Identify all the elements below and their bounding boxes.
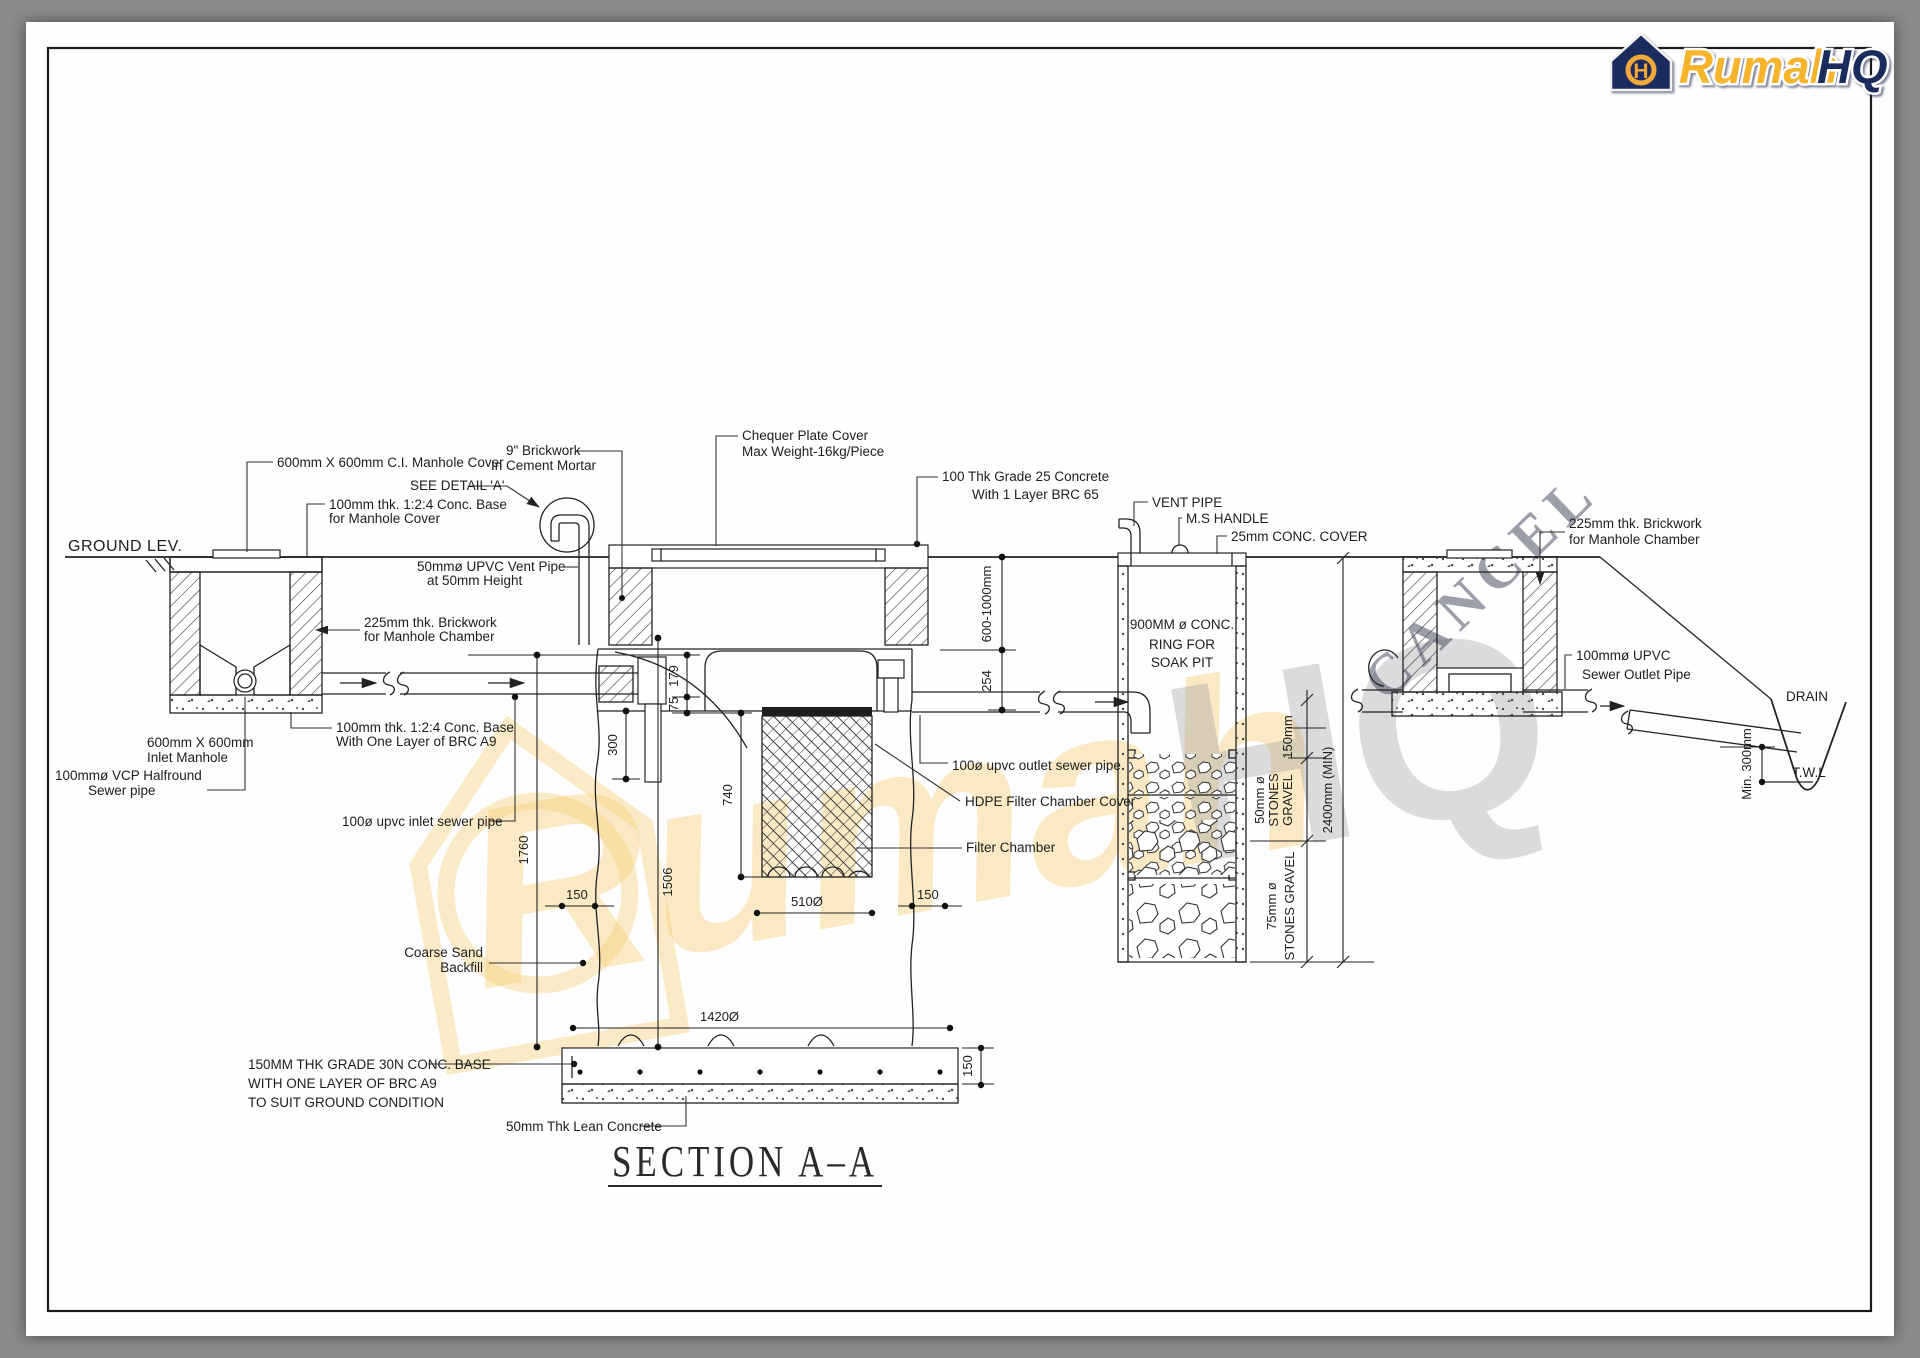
- svg-text:50mmø UPVC Vent Pipe: 50mmø UPVC Vent Pipe: [417, 559, 566, 574]
- dim-gravel75-line2: STONES GRAVEL: [1282, 852, 1297, 961]
- dim-510: 510Ø: [791, 894, 823, 909]
- section-title-text: SECTION A–A: [612, 1137, 878, 1186]
- svg-text:600mm X 600mm: 600mm X 600mm: [147, 735, 254, 750]
- section-title: SECTION A–A: [608, 1137, 882, 1186]
- drawing-sheet-stage: Rumah HQ CANCEL GROUND LEV.: [0, 0, 1920, 1358]
- dim-254: 254: [979, 670, 994, 692]
- svg-text:VENT PIPE: VENT PIPE: [1152, 495, 1222, 510]
- svg-text:Max Weight-16kg/Piece: Max Weight-16kg/Piece: [742, 444, 884, 459]
- svg-text:at 50mm Height: at 50mm Height: [427, 573, 523, 588]
- label-drain: DRAIN: [1786, 689, 1828, 704]
- svg-text:100mm thk. 1:2:4 Conc. Base: 100mm thk. 1:2:4 Conc. Base: [336, 720, 514, 735]
- svg-text:900MM ø CONC.: 900MM ø CONC.: [1130, 617, 1234, 632]
- svg-text:225mm thk. Brickwork: 225mm thk. Brickwork: [364, 615, 497, 630]
- svg-text:Sewer Outlet Pipe: Sewer Outlet Pipe: [1582, 667, 1691, 682]
- svg-text:With 1 Layer BRC 65: With 1 Layer BRC 65: [972, 487, 1099, 502]
- svg-text:SOAK PIT: SOAK PIT: [1151, 655, 1213, 670]
- dim-740: 740: [720, 784, 735, 806]
- svg-text:225mm thk. Brickwork: 225mm thk. Brickwork: [1569, 516, 1702, 531]
- dim-gravel50-line2: STONES: [1266, 773, 1281, 827]
- svg-text:WITH ONE LAYER OF BRC A9: WITH ONE LAYER OF BRC A9: [248, 1076, 437, 1091]
- label-chequer-plate-cover: Chequer Plate Cover Max Weight-16kg/Piec…: [716, 428, 884, 546]
- svg-text:Inlet Manhole: Inlet Manhole: [147, 750, 228, 765]
- svg-text:100ø upvc outlet sewer pipe: 100ø upvc outlet sewer pipe: [952, 758, 1121, 773]
- label-upvc-vent-pipe: 50mmø UPVC Vent Pipe at 50mm Height: [417, 559, 578, 588]
- svg-text:With One Layer of BRC A9: With One Layer of BRC A9: [336, 734, 497, 749]
- label-sewer-outlet-pipe: 100mmø UPVC Sewer Outlet Pipe: [1565, 648, 1691, 689]
- dim-1760: 1760: [516, 836, 531, 865]
- logo-brand-text: Rumah: [1679, 40, 1838, 93]
- svg-text:In Cement Mortar: In Cement Mortar: [491, 458, 597, 473]
- label-brickwork-manhole-left: 225mm thk. Brickwork for Manhole Chamber: [316, 615, 497, 644]
- dim-300: 300: [605, 734, 620, 756]
- label-conc-base-manhole-cover: 100mm thk. 1:2:4 Conc. Base for Manhole …: [307, 497, 507, 556]
- svg-text:100 Thk Grade 25 Concrete: 100 Thk Grade 25 Concrete: [942, 469, 1109, 484]
- label-inlet-manhole: 600mm X 600mm Inlet Manhole: [147, 735, 254, 765]
- dim-1506: 1506: [660, 868, 675, 897]
- dim-75: 75: [666, 697, 681, 711]
- svg-text:25mm CONC. COVER: 25mm CONC. COVER: [1231, 529, 1368, 544]
- dim-150-base: 150: [960, 1055, 975, 1077]
- dim-invert-depth: 600-1000mm: [979, 566, 994, 643]
- svg-text:Chequer Plate Cover: Chequer Plate Cover: [742, 428, 869, 443]
- svg-text:100mmø UPVC: 100mmø UPVC: [1576, 648, 1671, 663]
- svg-text:for Manhole Cover: for Manhole Cover: [329, 511, 441, 526]
- svg-text:SEE DETAIL 'A': SEE DETAIL 'A': [410, 478, 504, 493]
- svg-text:Coarse Sand: Coarse Sand: [404, 945, 483, 960]
- label-conc-base-30n: 150MM THK GRADE 30N CONC. BASE WITH ONE …: [248, 1057, 574, 1110]
- dim-gravel75-line1: 75mm ø: [1264, 882, 1279, 930]
- svg-text:50mm Thk Lean Concrete: 50mm Thk Lean Concrete: [506, 1119, 662, 1134]
- dim-150-left: 150: [566, 887, 588, 902]
- dim-150-right: 150: [917, 887, 939, 902]
- label-conc-cover-25mm: 25mm CONC. COVER: [1217, 529, 1368, 554]
- label-twl: T.W.L: [1792, 765, 1826, 780]
- dim-1420: 1420Ø: [700, 1009, 739, 1024]
- svg-text:RING FOR: RING FOR: [1149, 637, 1215, 652]
- ms-handle-shape: [1172, 545, 1188, 553]
- svg-text:M.S HANDLE: M.S HANDLE: [1186, 511, 1269, 526]
- label-conc-base-brc-a9: 100mm thk. 1:2:4 Conc. Base With One Lay…: [291, 712, 514, 749]
- dim-pit-depth: 2400mm (MIN): [1320, 747, 1335, 834]
- svg-text:150MM THK GRADE 30N CONC. BASE: 150MM THK GRADE 30N CONC. BASE: [248, 1057, 491, 1072]
- svg-text:9" Brickwork: 9" Brickwork: [506, 443, 581, 458]
- svg-text:600mm X 600mm C.I. Manhole Cov: 600mm X 600mm C.I. Manhole Cover: [277, 455, 504, 470]
- dim-179: 179: [666, 665, 681, 687]
- section-drawing: Rumah HQ CANCEL GROUND LEV.: [0, 0, 1920, 1358]
- label-grade25-concrete: 100 Thk Grade 25 Concrete With 1 Layer B…: [917, 469, 1109, 544]
- logo-suffix-text: HQ: [1817, 40, 1888, 93]
- svg-text:Filter Chamber: Filter Chamber: [966, 840, 1056, 855]
- dim-gravel50-line3: GRAVEL: [1280, 774, 1295, 826]
- svg-text:100mmø VCP Halfround: 100mmø VCP Halfround: [55, 768, 202, 783]
- svg-text:Backfill: Backfill: [440, 960, 483, 975]
- dim-min-300: Min. 300mm: [1739, 728, 1754, 800]
- inlet-manhole: [170, 550, 394, 713]
- svg-text:for Manhole Chamber: for Manhole Chamber: [364, 629, 495, 644]
- vent-pipe-shape: [1119, 519, 1140, 553]
- svg-text:TO SUIT GROUND CONDITION: TO SUIT GROUND CONDITION: [248, 1095, 444, 1110]
- dim-gravel50-line1: 50mm ø: [1252, 776, 1267, 824]
- svg-text:100mm thk. 1:2:4 Conc. Base: 100mm thk. 1:2:4 Conc. Base: [329, 497, 507, 512]
- svg-text:for Manhole Chamber: for Manhole Chamber: [1569, 532, 1700, 547]
- svg-text:100ø upvc inlet sewer pipe: 100ø upvc inlet sewer pipe: [342, 814, 503, 829]
- ground-level-label: GROUND LEV.: [68, 538, 182, 555]
- logo-monogram: H: [1633, 60, 1648, 83]
- svg-text:HDPE Filter Chamber Cover: HDPE Filter Chamber Cover: [965, 794, 1136, 809]
- dim-gravel-150: 150mm: [1280, 715, 1295, 758]
- brand-logo: H Rumah HQ: [1611, 34, 1888, 93]
- svg-text:Sewer pipe: Sewer pipe: [88, 783, 156, 798]
